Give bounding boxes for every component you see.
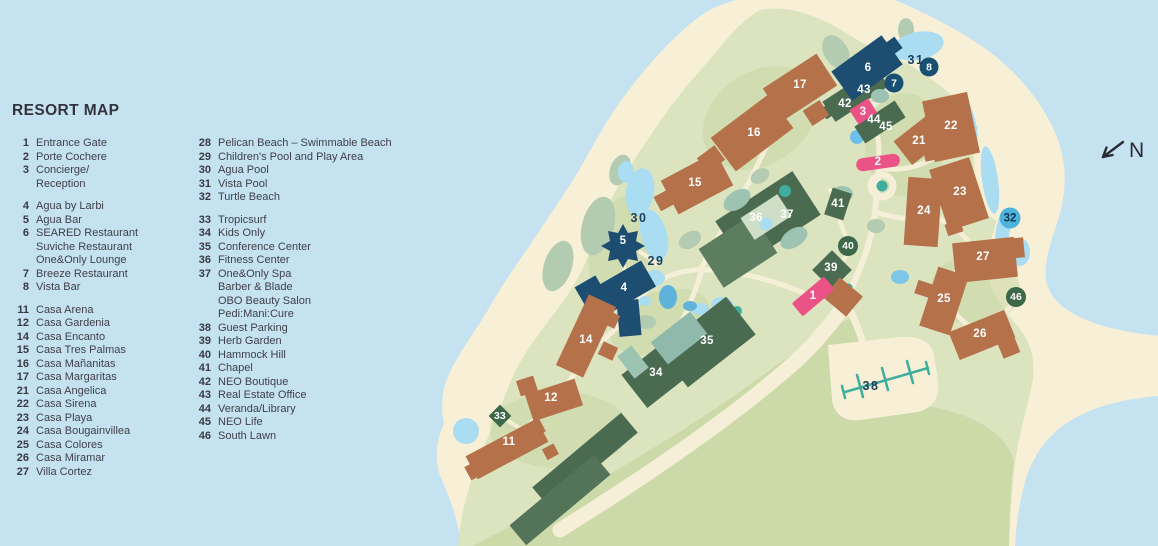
legend-item-number: 4	[12, 200, 29, 214]
legend-item-label: Agua Bar	[36, 214, 82, 228]
legend-item-number: 15	[12, 344, 29, 358]
north-indicator: N	[1096, 138, 1144, 164]
building-casa-24	[904, 177, 943, 247]
legend-item-label: Casa Gardenia	[36, 317, 110, 331]
fountain-icon	[877, 181, 888, 192]
legend-item-number: 17	[12, 371, 29, 385]
legend-item-label: Tropicsurf	[218, 214, 267, 228]
resort-map-page: RESORT MAP 1Entrance Gate2Porte Cochere3…	[0, 0, 1158, 546]
legend-item-number: 44	[194, 403, 211, 417]
legend-item-label: Hammock Hill	[218, 349, 286, 363]
legend-item-number: 30	[194, 164, 211, 178]
legend-item-7: 7Breeze Restaurant	[12, 268, 194, 282]
legend-item-number: 36	[194, 254, 211, 268]
legend-item-label: Veranda/Library	[218, 403, 296, 417]
legend-item-label: One&Only SpaBarber & BladeOBO Beauty Sal…	[218, 268, 311, 322]
legend-item-number: 5	[12, 214, 29, 228]
legend-item-label: Entrance Gate	[36, 137, 107, 151]
legend-item-number: 2	[12, 151, 29, 165]
legend-item-39: 39Herb Garden	[194, 335, 392, 349]
legend-item-number: 25	[12, 439, 29, 453]
legend-item-label: Casa Sirena	[36, 398, 97, 412]
legend-item-label: SEARED RestaurantSuviche RestaurantOne&O…	[36, 227, 138, 268]
legend-item-label: Pelican Beach – Swimmable Beach	[218, 137, 392, 151]
legend-item-45: 45NEO Life	[194, 416, 392, 430]
legend-item-17: 17Casa Margaritas	[12, 371, 194, 385]
legend-item-number: 16	[12, 358, 29, 372]
legend-item-label: Agua by Larbi	[36, 200, 104, 214]
legend-item-number: 21	[12, 385, 29, 399]
legend-item-number: 34	[194, 227, 211, 241]
north-arrow-icon	[1096, 138, 1126, 164]
legend-item-44: 44Veranda/Library	[194, 403, 392, 417]
legend-item-number: 6	[12, 227, 29, 268]
legend-column-1: 1Entrance Gate2Porte Cochere3Concierge/R…	[12, 137, 194, 479]
legend-item-number: 38	[194, 322, 211, 336]
legend-item-number: 33	[194, 214, 211, 228]
legend-item-label: Casa Tres Palmas	[36, 344, 126, 358]
legend-item-label: Fitness Center	[218, 254, 290, 268]
legend: RESORT MAP 1Entrance Gate2Porte Cochere3…	[12, 102, 392, 479]
legend-item-label: Guest Parking	[218, 322, 288, 336]
legend-item-number: 24	[12, 425, 29, 439]
legend-item-label: Casa Miramar	[36, 452, 105, 466]
legend-item-16: 16Casa Mañanitas	[12, 358, 194, 372]
legend-item-14: 14Casa Encanto	[12, 331, 194, 345]
legend-item-21: 21Casa Angelica	[12, 385, 194, 399]
legend-item-label: Porte Cochere	[36, 151, 107, 165]
legend-item-number: 27	[12, 466, 29, 480]
legend-item-32: 32Turtle Beach	[194, 191, 392, 205]
legend-item-number: 40	[194, 349, 211, 363]
legend-item-label: Agua Pool	[218, 164, 269, 178]
legend-item-29: 29Children's Pool and Play Area	[194, 151, 392, 165]
legend-item-label: NEO Life	[218, 416, 263, 430]
legend-item-label: Breeze Restaurant	[36, 268, 128, 282]
legend-item-number: 46	[194, 430, 211, 444]
legend-item-3: 3Concierge/Reception	[12, 164, 194, 191]
legend-item-number: 7	[12, 268, 29, 282]
legend-item-number: 8	[12, 281, 29, 295]
north-label: N	[1129, 139, 1144, 163]
legend-item-label: NEO Boutique	[218, 376, 288, 390]
legend-gap	[12, 191, 194, 200]
legend-item-41: 41Chapel	[194, 362, 392, 376]
legend-column-2: 28Pelican Beach – Swimmable Beach29Child…	[194, 137, 392, 479]
legend-item-25: 25Casa Colores	[12, 439, 194, 453]
legend-item-5: 5Agua Bar	[12, 214, 194, 228]
legend-item-number: 3	[12, 164, 29, 191]
legend-item-number: 12	[12, 317, 29, 331]
legend-item-number: 45	[194, 416, 211, 430]
legend-item-number: 31	[194, 178, 211, 192]
legend-title: RESORT MAP	[12, 102, 392, 120]
legend-item-label: Casa Encanto	[36, 331, 105, 345]
legend-item-label: Children's Pool and Play Area	[218, 151, 363, 165]
legend-item-1: 1Entrance Gate	[12, 137, 194, 151]
legend-item-26: 26Casa Miramar	[12, 452, 194, 466]
legend-item-36: 36Fitness Center	[194, 254, 392, 268]
legend-item-34: 34Kids Only	[194, 227, 392, 241]
legend-gap	[194, 205, 392, 214]
legend-item-30: 30Agua Pool	[194, 164, 392, 178]
legend-item-number: 35	[194, 241, 211, 255]
legend-item-42: 42NEO Boutique	[194, 376, 392, 390]
legend-item-15: 15Casa Tres Palmas	[12, 344, 194, 358]
legend-item-27: 27Villa Cortez	[12, 466, 194, 480]
legend-item-40: 40Hammock Hill	[194, 349, 392, 363]
legend-item-number: 14	[12, 331, 29, 345]
guest-parking	[828, 337, 938, 420]
legend-item-label: Real Estate Office	[218, 389, 306, 403]
legend-item-number: 11	[12, 304, 29, 318]
legend-item-number: 32	[194, 191, 211, 205]
legend-item-number: 39	[194, 335, 211, 349]
legend-item-number: 23	[12, 412, 29, 426]
legend-item-23: 23Casa Playa	[12, 412, 194, 426]
legend-item-number: 26	[12, 452, 29, 466]
legend-item-6: 6SEARED RestaurantSuviche RestaurantOne&…	[12, 227, 194, 268]
legend-item-label: Casa Bougainvillea	[36, 425, 130, 439]
legend-item-number: 41	[194, 362, 211, 376]
legend-item-38: 38Guest Parking	[194, 322, 392, 336]
legend-item-label: Chapel	[218, 362, 253, 376]
legend-item-8: 8Vista Bar	[12, 281, 194, 295]
legend-item-number: 1	[12, 137, 29, 151]
legend-item-43: 43Real Estate Office	[194, 389, 392, 403]
legend-item-4: 4Agua by Larbi	[12, 200, 194, 214]
legend-item-28: 28Pelican Beach – Swimmable Beach	[194, 137, 392, 151]
legend-item-2: 2Porte Cochere	[12, 151, 194, 165]
legend-item-22: 22Casa Sirena	[12, 398, 194, 412]
legend-item-label: Casa Mañanitas	[36, 358, 116, 372]
legend-item-number: 29	[194, 151, 211, 165]
legend-item-24: 24Casa Bougainvillea	[12, 425, 194, 439]
legend-item-label: Vista Pool	[218, 178, 267, 192]
legend-item-label: Herb Garden	[218, 335, 282, 349]
legend-item-label: Villa Cortez	[36, 466, 92, 480]
legend-item-label: Turtle Beach	[218, 191, 280, 205]
legend-item-number: 43	[194, 389, 211, 403]
legend-item-number: 22	[12, 398, 29, 412]
legend-item-label: Casa Angelica	[36, 385, 106, 399]
legend-item-37: 37One&Only SpaBarber & BladeOBO Beauty S…	[194, 268, 392, 322]
legend-item-number: 42	[194, 376, 211, 390]
legend-item-label: Concierge/Reception	[36, 164, 89, 191]
legend-item-label: Vista Bar	[36, 281, 80, 295]
legend-item-label: Casa Arena	[36, 304, 93, 318]
legend-gap	[12, 295, 194, 304]
legend-item-label: Casa Playa	[36, 412, 92, 426]
legend-item-label: Casa Colores	[36, 439, 103, 453]
legend-item-33: 33Tropicsurf	[194, 214, 392, 228]
legend-item-number: 28	[194, 137, 211, 151]
legend-item-label: Kids Only	[218, 227, 265, 241]
legend-item-label: Casa Margaritas	[36, 371, 117, 385]
legend-item-11: 11Casa Arena	[12, 304, 194, 318]
legend-item-number: 37	[194, 268, 211, 322]
legend-item-46: 46South Lawn	[194, 430, 392, 444]
legend-item-35: 35Conference Center	[194, 241, 392, 255]
legend-item-31: 31Vista Pool	[194, 178, 392, 192]
legend-item-12: 12Casa Gardenia	[12, 317, 194, 331]
legend-item-label: Conference Center	[218, 241, 311, 255]
legend-item-label: South Lawn	[218, 430, 276, 444]
